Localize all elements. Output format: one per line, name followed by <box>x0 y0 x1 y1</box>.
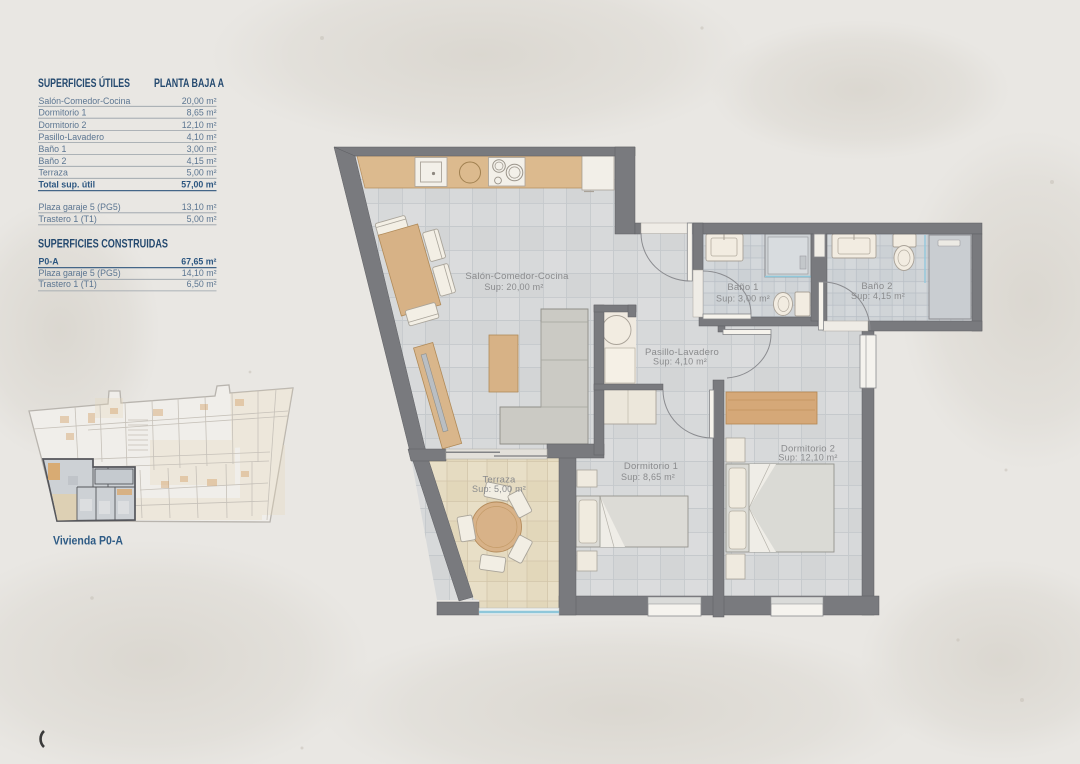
svg-text:5,00 m²: 5,00 m² <box>187 214 217 224</box>
svg-text:SUPERFICIES ÚTILES: SUPERFICIES ÚTILES <box>38 77 130 90</box>
svg-text:Sup: 3,00 m²: Sup: 3,00 m² <box>716 294 770 304</box>
svg-text:Sup: 5,00 m²: Sup: 5,00 m² <box>472 484 526 494</box>
svg-text:14,10 m²: 14,10 m² <box>182 268 217 278</box>
svg-text:Baño 1: Baño 1 <box>39 144 67 154</box>
svg-text:Baño 2: Baño 2 <box>39 156 67 166</box>
svg-text:Sup: 8,65 m²: Sup: 8,65 m² <box>621 472 675 482</box>
svg-text:Sup: 4,10 m²: Sup: 4,10 m² <box>653 357 707 367</box>
svg-text:P0-A: P0-A <box>39 257 60 267</box>
svg-text:Dormitorio 1: Dormitorio 1 <box>39 108 87 118</box>
svg-text:4,10 m²: 4,10 m² <box>187 132 217 142</box>
svg-text:Dormitorio 2: Dormitorio 2 <box>39 120 87 130</box>
svg-text:8,65 m²: 8,65 m² <box>187 108 217 118</box>
svg-text:Dormitorio 1: Dormitorio 1 <box>624 461 678 472</box>
svg-text:Total sup. útil: Total sup. útil <box>39 180 96 190</box>
svg-text:12,10 m²: 12,10 m² <box>182 120 217 130</box>
svg-text:3,00 m²: 3,00 m² <box>187 144 217 154</box>
svg-text:Sup: 4,15 m²: Sup: 4,15 m² <box>851 291 905 301</box>
svg-text:Sup: 20,00 m²: Sup: 20,00 m² <box>484 282 543 292</box>
svg-text:67,65 m²: 67,65 m² <box>181 257 216 267</box>
svg-text:57,00 m²: 57,00 m² <box>181 180 216 190</box>
svg-text:Salón-Comedor-Cocina: Salón-Comedor-Cocina <box>465 271 569 282</box>
svg-text:Plaza garaje 5 (PG5): Plaza garaje 5 (PG5) <box>39 268 121 278</box>
svg-text:6,50 m²: 6,50 m² <box>187 279 217 289</box>
svg-text:Trastero 1 (T1): Trastero 1 (T1) <box>39 214 97 224</box>
svg-text:SUPERFICIES CONSTRUIDAS: SUPERFICIES CONSTRUIDAS <box>38 238 168 250</box>
svg-text:20,00 m²: 20,00 m² <box>182 96 217 106</box>
svg-text:Trastero 1 (T1): Trastero 1 (T1) <box>39 279 97 289</box>
svg-text:Pasillo-Lavadero: Pasillo-Lavadero <box>39 132 105 142</box>
svg-text:Salón-Comedor-Cocina: Salón-Comedor-Cocina <box>39 96 131 106</box>
svg-text:Sup: 12,10 m²: Sup: 12,10 m² <box>778 453 837 463</box>
svg-text:Vivienda P0-A: Vivienda P0-A <box>53 534 123 548</box>
svg-text:PLANTA BAJA A: PLANTA BAJA A <box>154 78 224 90</box>
svg-text:Baño 1: Baño 1 <box>727 282 758 293</box>
svg-text:4,15 m²: 4,15 m² <box>187 156 217 166</box>
svg-text:5,00 m²: 5,00 m² <box>187 168 217 178</box>
svg-text:Terraza: Terraza <box>39 168 68 178</box>
svg-text:Plaza garaje 5 (PG5): Plaza garaje 5 (PG5) <box>39 202 121 212</box>
svg-text:13,10 m²: 13,10 m² <box>182 202 217 212</box>
